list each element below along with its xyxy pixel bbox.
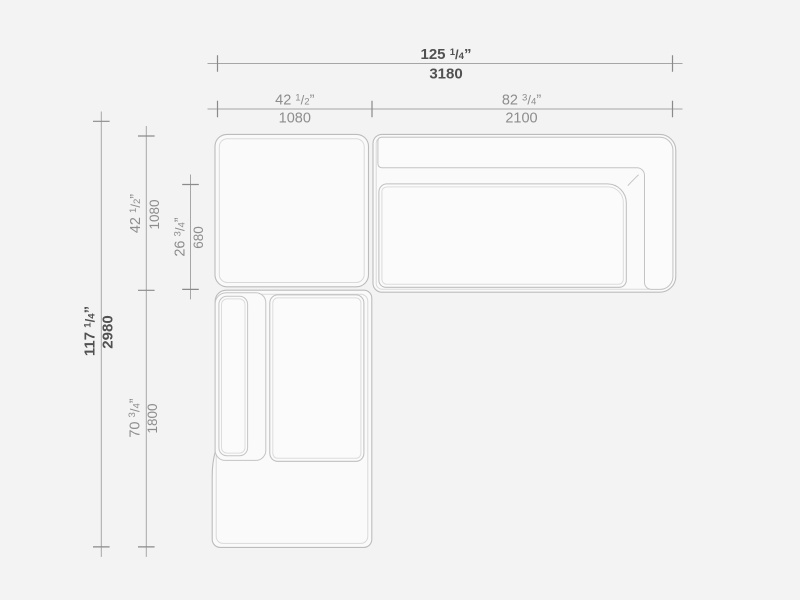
svg-text:70 3/4”: 70 3/4”: [127, 398, 143, 437]
svg-text:125 1/4”: 125 1/4”: [420, 46, 471, 63]
svg-text:2980: 2980: [99, 315, 116, 348]
svg-text:1080: 1080: [279, 111, 311, 127]
svg-text:26 3/4”: 26 3/4”: [172, 217, 188, 256]
svg-text:82 3/4”: 82 3/4”: [502, 92, 541, 108]
svg-text:3180: 3180: [429, 65, 462, 82]
svg-text:42 1/2”: 42 1/2”: [128, 194, 144, 233]
svg-text:1800: 1800: [145, 403, 160, 433]
svg-text:117 1/4”: 117 1/4”: [82, 306, 99, 356]
svg-text:680: 680: [191, 226, 206, 249]
svg-text:2100: 2100: [505, 111, 537, 127]
svg-text:1080: 1080: [147, 199, 162, 229]
svg-text:42 1/2”: 42 1/2”: [275, 92, 314, 108]
